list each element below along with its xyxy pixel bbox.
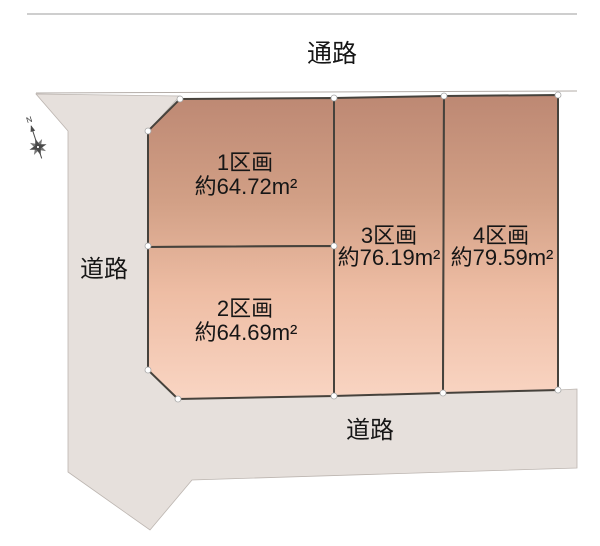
vertex-dot — [177, 96, 183, 102]
site-plan: 通路 1区画 約64.72m² 2区画 約64.69m² 3区画 約76.19m… — [0, 0, 600, 546]
road-top-boundary-line — [36, 91, 577, 93]
vertex-dot — [440, 390, 446, 396]
vertex-dot — [145, 367, 151, 373]
lot-4-area: 約79.59m² — [451, 245, 554, 270]
lot-1-label: 1区画 — [217, 150, 273, 175]
vertex-dot — [555, 387, 561, 393]
left-road-label: 道路 — [80, 256, 128, 283]
bottom-road-label: 道路 — [346, 417, 394, 444]
vertex-dot — [331, 243, 337, 249]
compass-needle-arrow — [29, 124, 36, 132]
vertex-dot — [145, 243, 151, 249]
lot-2-area: 約64.69m² — [195, 320, 298, 345]
vertex-dot — [441, 93, 447, 99]
lot-1-area: 約64.72m² — [195, 174, 298, 199]
vertex-dot — [331, 393, 337, 399]
vertex-dot — [555, 92, 561, 98]
passage-label: 通路 — [307, 40, 357, 68]
compass-north-label: N — [25, 115, 33, 125]
lot-3-area: 約76.19m² — [338, 245, 441, 270]
lot-map-canvas: 通路 1区画 約64.72m² 2区画 約64.69m² 3区画 約76.19m… — [0, 0, 600, 546]
lot-2-label: 2区画 — [217, 296, 273, 321]
compass-icon: N — [16, 112, 54, 163]
vertex-dot — [331, 95, 337, 101]
vertex-dot — [145, 128, 151, 134]
vertex-dot — [175, 396, 181, 402]
